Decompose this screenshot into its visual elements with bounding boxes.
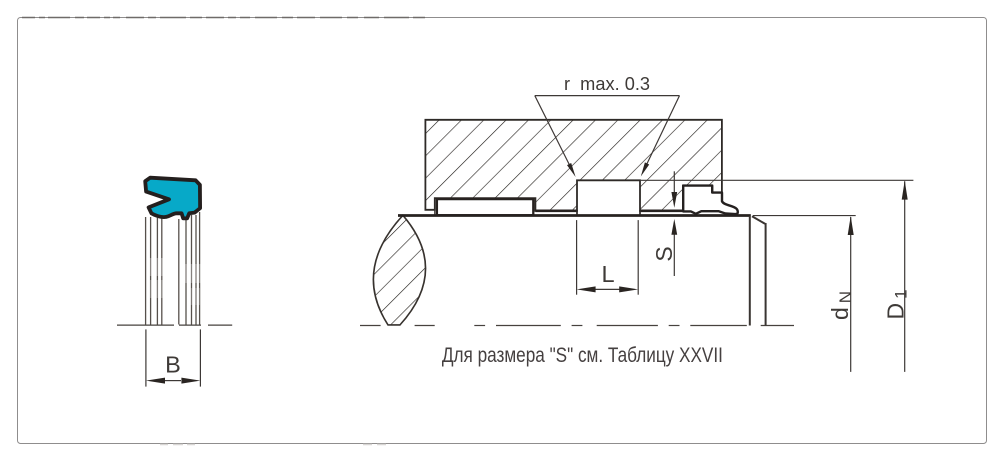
svg-text:L: L — [601, 261, 614, 287]
svg-text:r max. 0.3: r max. 0.3 — [564, 73, 650, 94]
svg-text:S: S — [651, 246, 677, 261]
svg-text:B: B — [165, 352, 181, 378]
svg-text:Для размера "S" см. Таблицу XX: Для размера "S" см. Таблицу XXVII — [442, 343, 723, 367]
